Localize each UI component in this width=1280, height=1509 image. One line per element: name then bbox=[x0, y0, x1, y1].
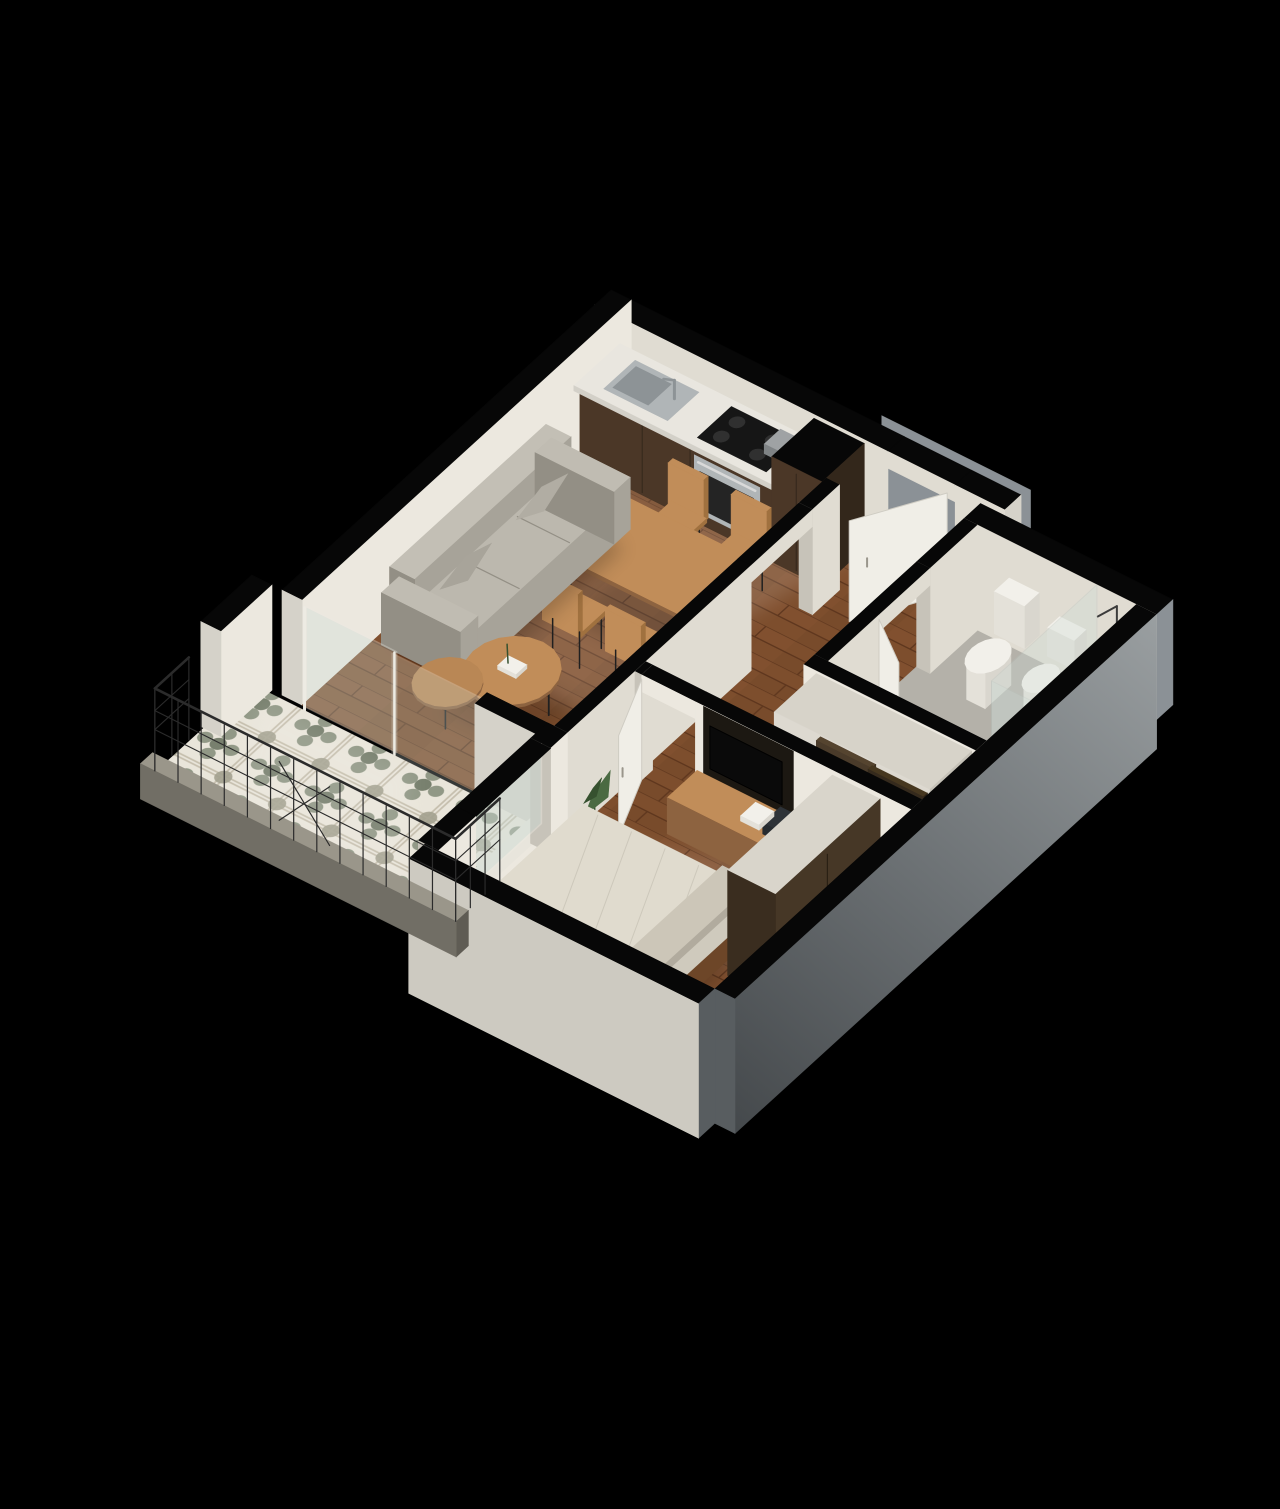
apartment-3d-floorplan-render bbox=[0, 0, 1280, 1509]
bathroom-wall-top-face bbox=[1157, 600, 1173, 720]
apartment-floorplan-stage bbox=[0, 0, 1280, 1509]
kitchen-faucet-spout bbox=[663, 379, 674, 380]
exterior-wall-bottom-face bbox=[699, 989, 715, 1138]
dining-chair-back-face bbox=[703, 476, 708, 522]
living-wall-left-face bbox=[282, 590, 302, 705]
coffee-table-sprig bbox=[507, 644, 508, 663]
dining-chair-back-face bbox=[578, 591, 583, 637]
exterior-wall-right-face bbox=[715, 989, 735, 1134]
